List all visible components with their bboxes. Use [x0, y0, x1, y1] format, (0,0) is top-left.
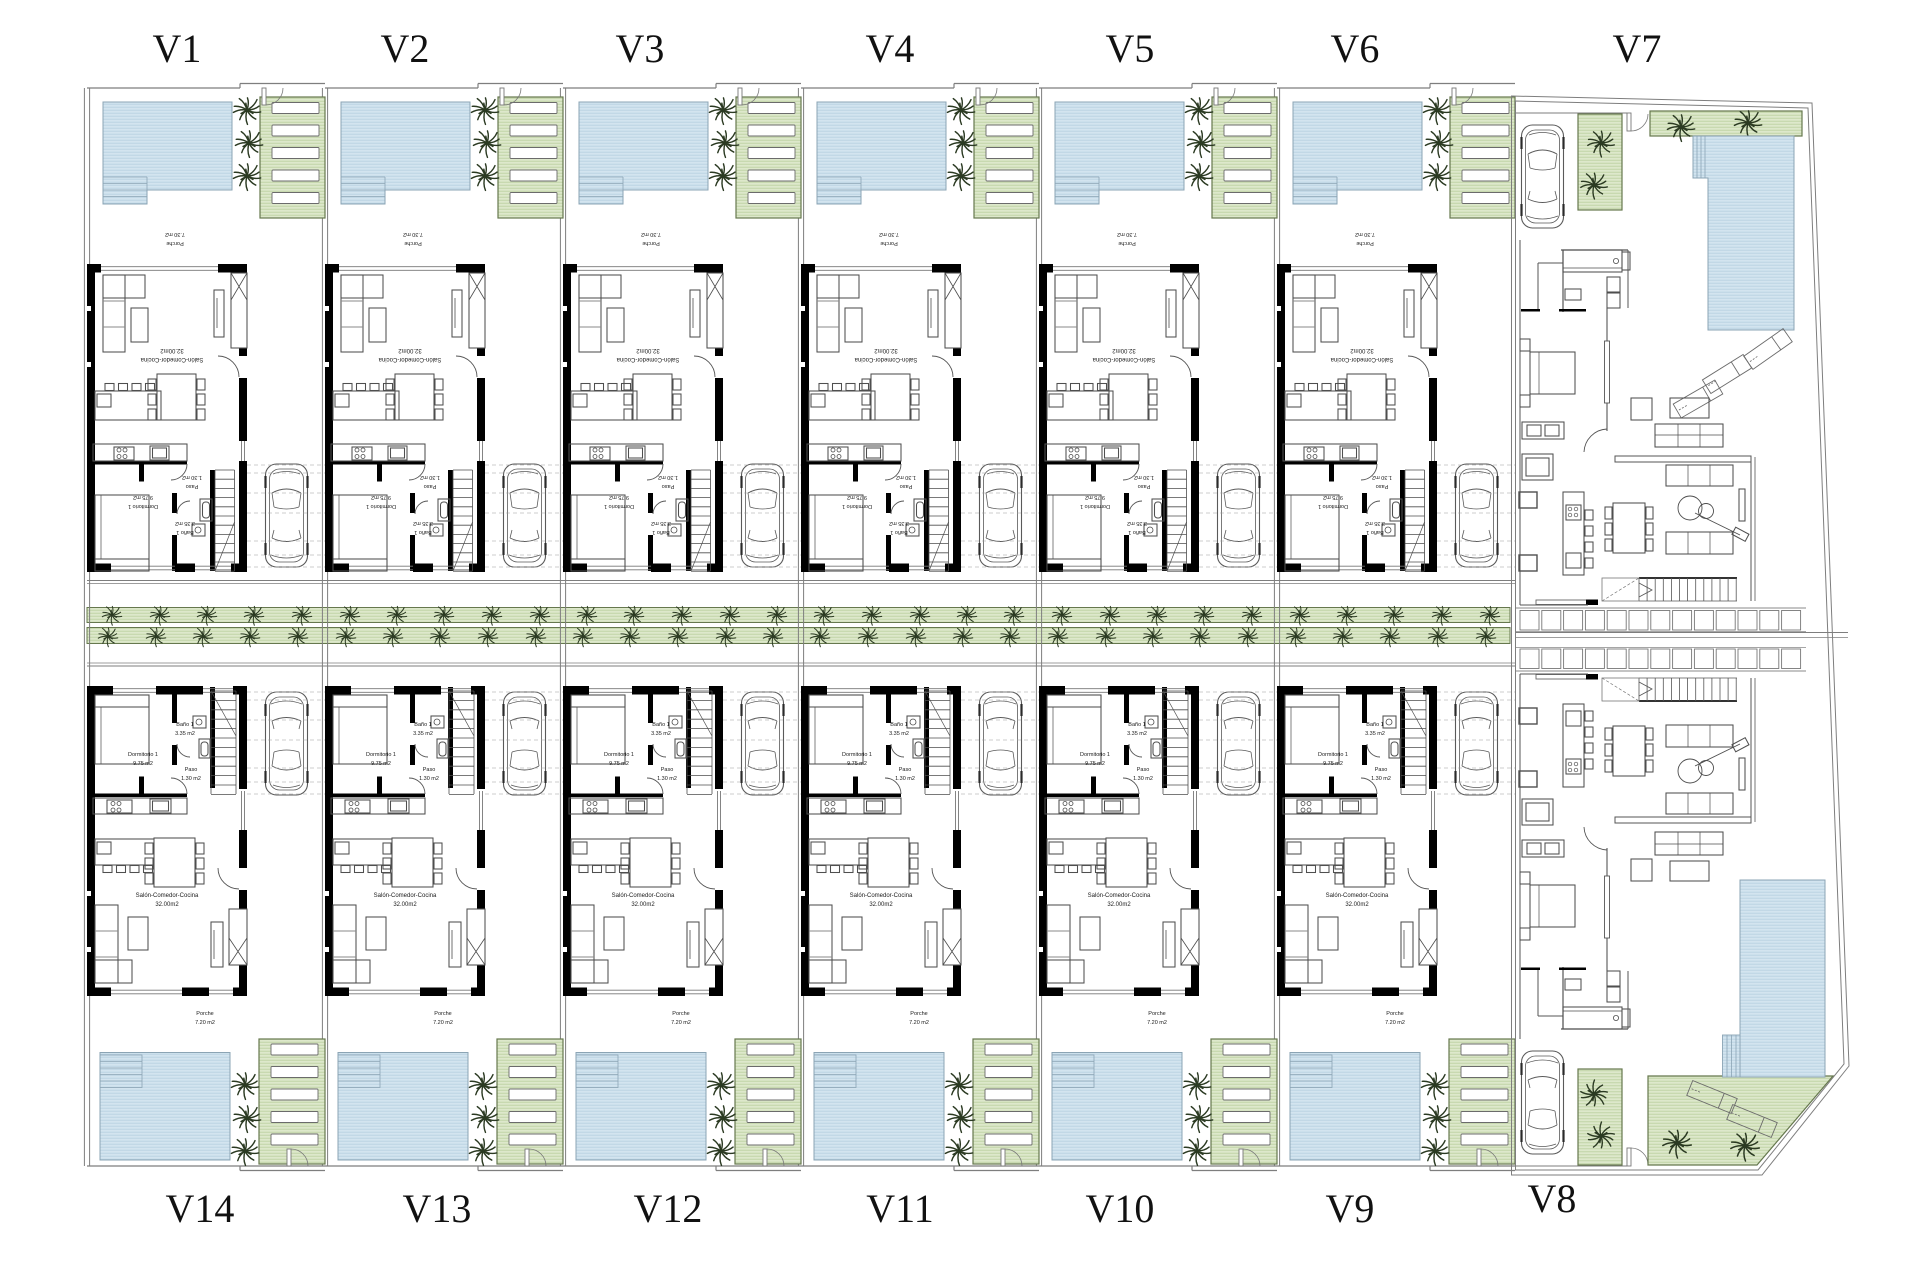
svg-text:Paso: Paso: [1375, 767, 1388, 773]
svg-text:Dormitorio 1: Dormitorio 1: [842, 503, 872, 509]
svg-text:Salón-Comedor-Cocina: Salón-Comedor-Cocina: [1330, 356, 1393, 362]
svg-text:3.35 m2: 3.35 m2: [889, 731, 909, 737]
svg-text:V1: V1: [153, 26, 202, 71]
svg-text:V4: V4: [866, 26, 915, 71]
svg-text:V14: V14: [166, 1186, 235, 1231]
svg-text:Salón-Comedor-Cocina: Salón-Comedor-Cocina: [616, 356, 679, 362]
svg-text:9.75 m2: 9.75 m2: [609, 494, 629, 500]
svg-text:7.30 m2: 7.30 m2: [1117, 231, 1137, 237]
svg-text:Baño 1: Baño 1: [890, 722, 907, 728]
svg-text:1.30 m2: 1.30 m2: [419, 776, 439, 782]
svg-text:3.35 m2: 3.35 m2: [1365, 731, 1385, 737]
svg-text:Baño 1: Baño 1: [1366, 722, 1383, 728]
svg-text:9.75 m2: 9.75 m2: [133, 494, 153, 500]
svg-text:Paso: Paso: [899, 767, 912, 773]
svg-text:Baño 1: Baño 1: [176, 722, 193, 728]
svg-text:Dormitorio 1: Dormitorio 1: [1318, 752, 1348, 758]
svg-text:V9: V9: [1326, 1186, 1375, 1231]
svg-text:7.20 m2: 7.20 m2: [195, 1020, 215, 1026]
svg-text:9.75 m2: 9.75 m2: [371, 494, 391, 500]
svg-text:32.00m2: 32.00m2: [393, 902, 417, 908]
svg-text:9.75 m2: 9.75 m2: [847, 761, 867, 767]
svg-text:Porche: Porche: [196, 1011, 213, 1017]
svg-text:V12: V12: [634, 1186, 703, 1231]
svg-text:Salón-Comedor-Cocina: Salón-Comedor-Cocina: [854, 356, 917, 362]
svg-text:Salón-Comedor-Cocina: Salón-Comedor-Cocina: [136, 893, 199, 899]
svg-text:3.35 m2: 3.35 m2: [413, 731, 433, 737]
svg-text:Dormitorio 1: Dormitorio 1: [1318, 503, 1348, 509]
svg-text:Porche: Porche: [1148, 1011, 1165, 1017]
svg-text:V11: V11: [866, 1186, 933, 1231]
svg-text:9.75 m2: 9.75 m2: [1323, 761, 1343, 767]
svg-text:9.75 m2: 9.75 m2: [1323, 494, 1343, 500]
svg-text:Paso: Paso: [185, 767, 198, 773]
svg-text:7.30 m2: 7.30 m2: [641, 231, 661, 237]
svg-text:3.35 m2: 3.35 m2: [1127, 731, 1147, 737]
svg-text:Dormitorio 1: Dormitorio 1: [366, 752, 396, 758]
svg-text:1.30 m2: 1.30 m2: [658, 474, 678, 480]
svg-text:9.75 m2: 9.75 m2: [133, 761, 153, 767]
svg-text:V8: V8: [1528, 1176, 1577, 1221]
svg-text:Porche: Porche: [672, 1011, 689, 1017]
svg-text:Salón-Comedor-Cocina: Salón-Comedor-Cocina: [1088, 893, 1151, 899]
svg-text:1.30 m2: 1.30 m2: [1133, 776, 1153, 782]
svg-text:7.30 m2: 7.30 m2: [403, 231, 423, 237]
svg-text:7.20 m2: 7.20 m2: [1147, 1020, 1167, 1026]
svg-text:32.00m2: 32.00m2: [398, 347, 422, 353]
svg-text:Porche: Porche: [910, 1011, 927, 1017]
svg-text:V7: V7: [1613, 26, 1662, 71]
svg-text:Porche: Porche: [404, 240, 421, 246]
svg-text:Baño 1: Baño 1: [890, 529, 907, 535]
svg-text:9.75 m2: 9.75 m2: [609, 761, 629, 767]
svg-text:7.20 m2: 7.20 m2: [909, 1020, 929, 1026]
svg-text:Porche: Porche: [1386, 1011, 1403, 1017]
svg-text:3.35 m2: 3.35 m2: [889, 520, 909, 526]
svg-text:Paso: Paso: [1137, 767, 1150, 773]
svg-text:3.35 m2: 3.35 m2: [651, 520, 671, 526]
svg-text:Paso: Paso: [423, 767, 436, 773]
svg-text:Paso: Paso: [1138, 483, 1151, 489]
svg-text:Dormitorio 1: Dormitorio 1: [842, 752, 872, 758]
svg-text:Dormitorio 1: Dormitorio 1: [604, 752, 634, 758]
svg-text:Salón-Comedor-Cocina: Salón-Comedor-Cocina: [378, 356, 441, 362]
svg-text:1.30 m2: 1.30 m2: [182, 474, 202, 480]
svg-text:3.35 m2: 3.35 m2: [651, 731, 671, 737]
svg-text:32.00m2: 32.00m2: [1107, 902, 1131, 908]
svg-text:Salón-Comedor-Cocina: Salón-Comedor-Cocina: [850, 893, 913, 899]
svg-text:V10: V10: [1086, 1186, 1155, 1231]
svg-text:32.00m2: 32.00m2: [155, 902, 179, 908]
svg-text:32.00m2: 32.00m2: [636, 347, 660, 353]
svg-text:7.30 m2: 7.30 m2: [165, 231, 185, 237]
svg-text:V5: V5: [1106, 26, 1155, 71]
svg-text:Porche: Porche: [166, 240, 183, 246]
svg-text:7.20 m2: 7.20 m2: [671, 1020, 691, 1026]
svg-text:Dormitorio 1: Dormitorio 1: [1080, 752, 1110, 758]
svg-text:Paso: Paso: [186, 483, 199, 489]
svg-text:7.20 m2: 7.20 m2: [433, 1020, 453, 1026]
svg-text:Baño 1: Baño 1: [414, 722, 431, 728]
svg-text:Dormitorio 1: Dormitorio 1: [128, 752, 158, 758]
svg-text:7.20 m2: 7.20 m2: [1385, 1020, 1405, 1026]
svg-text:1.30 m2: 1.30 m2: [895, 776, 915, 782]
svg-text:32.00m2: 32.00m2: [631, 902, 655, 908]
svg-text:1.30 m2: 1.30 m2: [420, 474, 440, 480]
svg-text:Porche: Porche: [642, 240, 659, 246]
svg-text:Salón-Comedor-Cocina: Salón-Comedor-Cocina: [1326, 893, 1389, 899]
svg-text:1.30 m2: 1.30 m2: [1134, 474, 1154, 480]
svg-text:1.30 m2: 1.30 m2: [1371, 776, 1391, 782]
svg-text:32.00m2: 32.00m2: [874, 347, 898, 353]
svg-text:Baño 1: Baño 1: [176, 529, 193, 535]
svg-text:Dormitorio 1: Dormitorio 1: [1080, 503, 1110, 509]
svg-text:Porche: Porche: [1118, 240, 1135, 246]
svg-text:7.30 m2: 7.30 m2: [1355, 231, 1375, 237]
svg-text:Baño 1: Baño 1: [414, 529, 431, 535]
svg-text:32.00m2: 32.00m2: [1112, 347, 1136, 353]
svg-text:Paso: Paso: [662, 483, 675, 489]
svg-text:Salón-Comedor-Cocina: Salón-Comedor-Cocina: [1092, 356, 1155, 362]
svg-text:9.75 m2: 9.75 m2: [847, 494, 867, 500]
svg-text:Baño 1: Baño 1: [1128, 722, 1145, 728]
svg-text:Dormitorio 1: Dormitorio 1: [604, 503, 634, 509]
svg-text:Baño 1: Baño 1: [1128, 529, 1145, 535]
svg-text:32.00m2: 32.00m2: [160, 347, 184, 353]
svg-text:Baño 1: Baño 1: [652, 529, 669, 535]
svg-text:1.30 m2: 1.30 m2: [181, 776, 201, 782]
svg-text:Paso: Paso: [661, 767, 674, 773]
svg-text:1.30 m2: 1.30 m2: [1372, 474, 1392, 480]
svg-text:3.35 m2: 3.35 m2: [175, 731, 195, 737]
svg-text:Salón-Comedor-Cocina: Salón-Comedor-Cocina: [612, 893, 675, 899]
svg-text:Salón-Comedor-Cocina: Salón-Comedor-Cocina: [140, 356, 203, 362]
svg-text:9.75 m2: 9.75 m2: [1085, 494, 1105, 500]
svg-text:1.30 m2: 1.30 m2: [657, 776, 677, 782]
svg-text:9.75 m2: 9.75 m2: [1085, 761, 1105, 767]
svg-text:32.00m2: 32.00m2: [1350, 347, 1374, 353]
svg-text:Paso: Paso: [1376, 483, 1389, 489]
svg-text:V2: V2: [381, 26, 430, 71]
svg-text:Porche: Porche: [434, 1011, 451, 1017]
svg-text:3.35 m2: 3.35 m2: [175, 520, 195, 526]
svg-text:Baño 1: Baño 1: [1366, 529, 1383, 535]
svg-text:Paso: Paso: [424, 483, 437, 489]
svg-text:32.00m2: 32.00m2: [869, 902, 893, 908]
svg-text:V3: V3: [616, 26, 665, 71]
svg-text:9.75 m2: 9.75 m2: [371, 761, 391, 767]
svg-text:V13: V13: [403, 1186, 472, 1231]
svg-text:Porche: Porche: [880, 240, 897, 246]
svg-text:Salón-Comedor-Cocina: Salón-Comedor-Cocina: [374, 893, 437, 899]
svg-text:Porche: Porche: [1356, 240, 1373, 246]
svg-text:3.35 m2: 3.35 m2: [413, 520, 433, 526]
svg-text:3.35 m2: 3.35 m2: [1365, 520, 1385, 526]
svg-text:Paso: Paso: [900, 483, 913, 489]
svg-text:7.30 m2: 7.30 m2: [879, 231, 899, 237]
svg-text:Dormitorio 1: Dormitorio 1: [366, 503, 396, 509]
svg-text:Baño 1: Baño 1: [652, 722, 669, 728]
svg-text:V6: V6: [1331, 26, 1380, 71]
svg-text:32.00m2: 32.00m2: [1345, 902, 1369, 908]
svg-text:3.35 m2: 3.35 m2: [1127, 520, 1147, 526]
svg-text:Dormitorio 1: Dormitorio 1: [128, 503, 158, 509]
svg-text:1.30 m2: 1.30 m2: [896, 474, 916, 480]
